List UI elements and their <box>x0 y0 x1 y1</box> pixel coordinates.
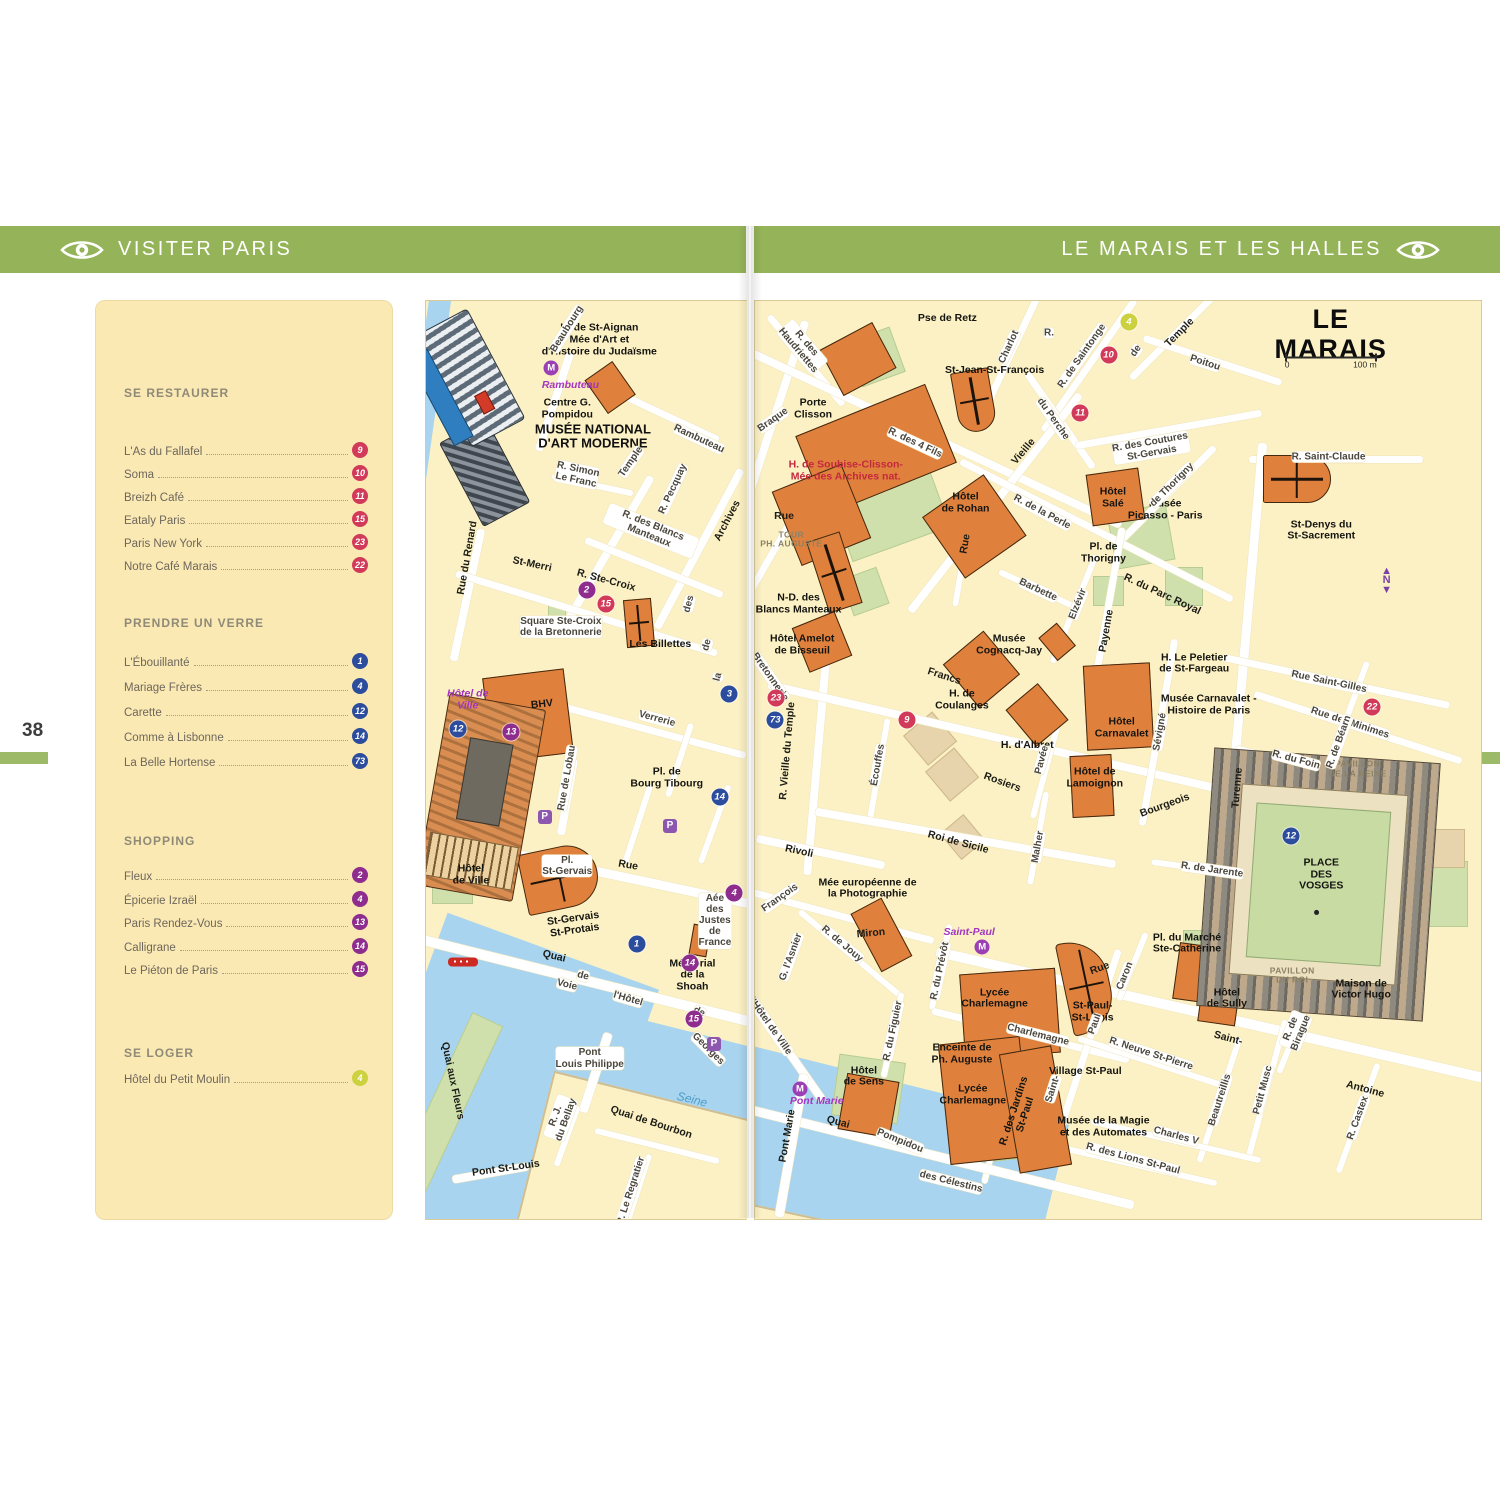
map-label: Hôtel de Sens <box>844 1065 884 1089</box>
legend-item-number: 4 <box>352 1070 368 1086</box>
poi-marker: 73 <box>767 711 784 728</box>
legend-item-label: Paris Rendez-Vous <box>124 918 222 930</box>
dotted-leader <box>206 690 348 691</box>
metro-icon: M <box>793 1081 808 1096</box>
legend-item-number: 23 <box>352 534 368 550</box>
map-label: PLACE DES VOSGES <box>1299 857 1343 892</box>
dotted-leader <box>206 454 348 455</box>
legend-item-label: L'Ébouillanté <box>124 657 190 669</box>
scale-labels: 0100 m <box>1285 360 1377 370</box>
map-label: Pl. St-Gervais <box>542 854 592 876</box>
legend-item: Comme à Lisbonne14 <box>124 727 368 744</box>
legend-item-number: 14 <box>352 728 368 744</box>
legend-item-number: 4 <box>352 678 368 694</box>
legend-item: Paris New York23 <box>124 533 368 550</box>
map-label: Poitou <box>1189 353 1222 373</box>
legend-item-label: L'As du Fallafel <box>124 446 202 458</box>
map-label: Saint-Paul <box>943 927 994 939</box>
dotted-leader <box>228 740 348 741</box>
map-label: Aée des Justes de France <box>698 893 731 949</box>
legend-item-label: Notre Café Marais <box>124 561 217 573</box>
map-label: PAVILLON DU ROI <box>1270 966 1315 985</box>
map-label: Musée Picasso - Paris <box>1128 499 1203 523</box>
book-gutter <box>738 226 762 1218</box>
parking-icon: P <box>707 1037 721 1051</box>
legend-item-number: 15 <box>352 511 368 527</box>
legend-item: La Belle Hortense73 <box>124 752 368 769</box>
map-label: R. Castex <box>1345 1095 1371 1142</box>
poi-marker: 2 <box>578 582 595 599</box>
legend-item-label: Le Piéton de Paris <box>124 965 218 977</box>
legend-item: Hôtel du Petit Moulin4 <box>124 1069 368 1086</box>
map-label: des <box>682 594 697 614</box>
church-cross <box>1271 478 1323 481</box>
page-title-left: VISITER PARIS <box>118 238 292 261</box>
map-label: Hôtel de Lamoignon <box>1066 767 1123 791</box>
map-label: Mée européenne de la Photographie <box>819 877 917 901</box>
legend-item-label: Paris New York <box>124 538 202 550</box>
scale-bar: 0100 m <box>1285 357 1377 370</box>
poi-marker: 13 <box>503 724 520 741</box>
map-label: Barbette <box>1017 577 1059 604</box>
legend-item-label: Carette <box>124 707 162 719</box>
map-panel-left: H. de St-Aignan Mée d'Art et d'Histoire … <box>425 300 747 1220</box>
legend-item-label: Eataly Paris <box>124 515 185 527</box>
legend-item: Breizh Café11 <box>124 487 368 504</box>
map-label: Payenne <box>1098 609 1117 654</box>
dotted-leader <box>226 926 348 927</box>
eye-icon <box>1396 237 1440 263</box>
map-label: R. de Birague <box>1279 1009 1314 1052</box>
legend-item-number: 73 <box>352 753 368 769</box>
poi-marker: 15 <box>685 1010 702 1027</box>
legend-section-title: SE RESTAURER <box>124 386 229 400</box>
map-label: Musée Cognacq-Jay <box>976 634 1042 658</box>
eye-icon <box>60 237 104 263</box>
map-label: St-Gervais St-Protais <box>546 910 601 941</box>
legend-item-label: Fleux <box>124 871 152 883</box>
dotted-leader <box>180 950 348 951</box>
poi-marker: 14 <box>711 788 728 805</box>
map-label: Rue de Lobau <box>556 745 579 812</box>
map-label: H. de Coulanges <box>935 689 989 713</box>
church-building <box>517 840 604 916</box>
street <box>1077 1035 1231 1090</box>
scale-distance: 100 m <box>1353 360 1377 370</box>
page-title-right: LE MARAIS ET LES HALLES <box>1061 238 1382 261</box>
map-label: R. Saint-Claude <box>1292 451 1366 462</box>
dotted-leader <box>201 903 348 904</box>
dotted-leader <box>234 1082 348 1083</box>
map-label: la <box>712 672 725 683</box>
dotted-leader <box>194 665 349 666</box>
map-label: Charles V <box>1152 1125 1199 1148</box>
legend-item: Le Piéton de Paris15 <box>124 960 368 977</box>
legend-item: L'Ébouillanté1 <box>124 652 368 669</box>
map-label: Hôtel Carnavalet <box>1095 716 1149 740</box>
header-bar-right: LE MARAIS ET LES HALLES <box>754 226 1500 273</box>
map-label: Lycée Charlemagne <box>940 1083 1007 1107</box>
legend-item: Mariage Frères4 <box>124 677 368 694</box>
legend-item-number: 4 <box>352 891 368 907</box>
map-label: Rue <box>774 511 794 523</box>
poi-marker: 11 <box>1072 404 1089 421</box>
street <box>622 784 653 865</box>
dotted-leader <box>158 477 348 478</box>
map-label: Musée de la Magie et des Automates <box>1057 1115 1149 1139</box>
map-label: BHV <box>530 698 553 712</box>
map-label: Hôtel de Ville <box>453 863 490 887</box>
map-label: Square Ste-Croix de la Bretonnerie <box>520 616 602 638</box>
map-label: R. du Prévôt <box>929 941 952 1001</box>
map-label: R. Pecquay <box>657 462 690 516</box>
legend-item-label: Hôtel du Petit Moulin <box>124 1074 230 1086</box>
legend-item: Paris Rendez-Vous13 <box>124 913 368 930</box>
dotted-leader <box>222 973 348 974</box>
dotted-leader <box>189 523 348 524</box>
legend-item-number: 9 <box>352 442 368 458</box>
map-label: St-Merri <box>511 556 552 576</box>
map-label: Rue <box>617 858 639 873</box>
map-label: Hôtel Amelot de Bisseuil <box>770 634 834 658</box>
legend-item: L'As du Fallafel9 <box>124 441 368 458</box>
legend-item: Eataly Paris15 <box>124 510 368 527</box>
legend-item-label: La Belle Hortense <box>124 757 215 769</box>
poi-marker: 22 <box>1364 698 1381 715</box>
church-building <box>950 367 998 434</box>
map-label: Rambuteau <box>542 380 599 392</box>
map-label: Centre G. Pompidou <box>542 398 593 422</box>
dotted-leader <box>166 715 348 716</box>
poi-marker: 14 <box>681 954 698 971</box>
dotted-leader <box>188 500 348 501</box>
map-label: Maison de Victor Hugo <box>1332 978 1391 1002</box>
poi-marker: 1 <box>628 935 645 952</box>
legend-item: Calligrane14 <box>124 937 368 954</box>
legend-item: Carette12 <box>124 702 368 719</box>
map-label: Rosiers <box>982 771 1022 795</box>
map-label: Temple <box>1163 316 1197 350</box>
map-panel-right: Pse de RetzCharlotR.R. de SaintongedeTem… <box>754 300 1482 1220</box>
legend-item-number: 15 <box>352 961 368 977</box>
map-label: Pl. de Thorigny <box>1081 542 1126 566</box>
map-label: G. l'Asnier <box>778 932 805 982</box>
legend-item-number: 13 <box>352 914 368 930</box>
legend-item-label: Soma <box>124 469 154 481</box>
map-label: St-Jean-St-François <box>945 365 1044 377</box>
map-label: N-D. des Blancs Manteaux <box>756 592 842 616</box>
map-label: H. Le Peletier de St-Fargeau <box>1159 652 1229 676</box>
legend-item-label: Breizh Café <box>124 492 184 504</box>
poi-marker: 10 <box>1100 347 1117 364</box>
legend-item-number: 2 <box>352 867 368 883</box>
map-label: St-Denys du St-Sacrement <box>1287 519 1355 543</box>
header-bar-left: VISITER PARIS <box>0 226 746 273</box>
legend-item-label: Calligrane <box>124 942 176 954</box>
map-label: Saint- <box>1212 1030 1243 1049</box>
legend-section-title: SE LOGER <box>124 1046 194 1060</box>
map-label: Hôtel de Rohan <box>942 491 990 515</box>
poi-marker: 15 <box>597 595 614 612</box>
map-label: TOUR PH. AUGUSTE <box>760 530 822 549</box>
guidebook-spread: VISITER PARIS LE MARAIS ET LES HALLES 38… <box>0 0 1500 1500</box>
map-label: Pse de Retz <box>918 313 977 325</box>
map-label: Musée Carnavalet - Histoire de Paris <box>1161 693 1257 717</box>
map-label: de <box>576 969 590 983</box>
metro-icon: M <box>544 361 559 376</box>
metro-icon: M <box>975 940 990 955</box>
legend-item-number: 10 <box>352 465 368 481</box>
dotted-leader <box>221 569 348 570</box>
legend-item: Épicerie Izraël4 <box>124 890 368 907</box>
map-label: Hôtel Salé <box>1100 487 1126 511</box>
map-label: H. de Soubise-Clisson- Mée des Archives … <box>789 459 903 483</box>
poi-marker: 12 <box>1282 828 1299 845</box>
map-label: Petit Musc <box>1251 1065 1275 1116</box>
legend-item-label: Comme à Lisbonne <box>124 732 224 744</box>
map-label: Lycée Charlemagne <box>961 987 1028 1011</box>
poi-marker: 12 <box>450 720 467 737</box>
legend-item: Notre Café Marais22 <box>124 556 368 573</box>
map-label: Porte Clisson <box>794 398 832 422</box>
legend-item-label: Mariage Frères <box>124 682 202 694</box>
map-label: Hôtel de Ville <box>447 689 488 713</box>
parking-icon: P <box>663 819 677 833</box>
legend-item-number: 22 <box>352 557 368 573</box>
poi-marker: 23 <box>768 689 785 706</box>
building <box>1039 623 1076 661</box>
page-number-left: 38 <box>22 720 43 742</box>
dotted-leader <box>156 879 348 880</box>
parking-icon: P <box>538 810 552 824</box>
poi-marker: 9 <box>898 711 915 728</box>
legend-item-label: Épicerie Izraël <box>124 895 197 907</box>
legend-item: Soma10 <box>124 464 368 481</box>
legend-item: Fleux2 <box>124 866 368 883</box>
dotted-leader <box>219 765 348 766</box>
legend-section-title: SHOPPING <box>124 834 195 848</box>
poi-marker: 4 <box>1120 314 1137 331</box>
page-number-bar-left <box>0 752 48 764</box>
boat-icon <box>448 957 478 966</box>
map-label: Pl. du Marché Ste-Catherine <box>1153 932 1221 956</box>
map-label: Village St-Paul <box>1049 1066 1122 1078</box>
legend-item-number: 14 <box>352 938 368 954</box>
map-label: Pont Louis Philippe <box>556 1047 624 1069</box>
street <box>756 834 885 869</box>
map-label: Pl. de Bourg Tibourg <box>630 767 703 791</box>
poi-marker: 3 <box>721 685 738 702</box>
map-label: Écouffes <box>869 743 887 787</box>
map-label: R. <box>1044 328 1054 339</box>
map-label: Les Billettes <box>629 639 691 651</box>
map-label: Hôtel de Sully <box>1207 987 1247 1011</box>
map-label: LE MARAIS <box>1256 304 1406 364</box>
legend-item-number: 11 <box>352 488 368 504</box>
map-label: Pont Marie <box>790 1097 844 1109</box>
map-label: Caron <box>1115 960 1136 991</box>
map-label: Rue Saint-Gilles <box>1290 669 1367 696</box>
map-label: Sévigné <box>1151 713 1169 753</box>
map-label: de <box>1128 343 1144 359</box>
north-arrow-icon: ▲ N ▼ <box>1381 567 1392 595</box>
scale-line <box>1285 357 1377 359</box>
map-label: R. du Figuier <box>881 1000 905 1062</box>
legend-sidebar: SE RESTAURERL'As du Fallafel9Soma10Breiz… <box>95 300 393 1220</box>
map-label: Enceinte de Ph. Auguste <box>931 1042 992 1066</box>
legend-section-title: PRENDRE UN VERRE <box>124 616 264 630</box>
legend-item-number: 12 <box>352 703 368 719</box>
legend-item-number: 1 <box>352 653 368 669</box>
dotted-leader <box>206 546 348 547</box>
